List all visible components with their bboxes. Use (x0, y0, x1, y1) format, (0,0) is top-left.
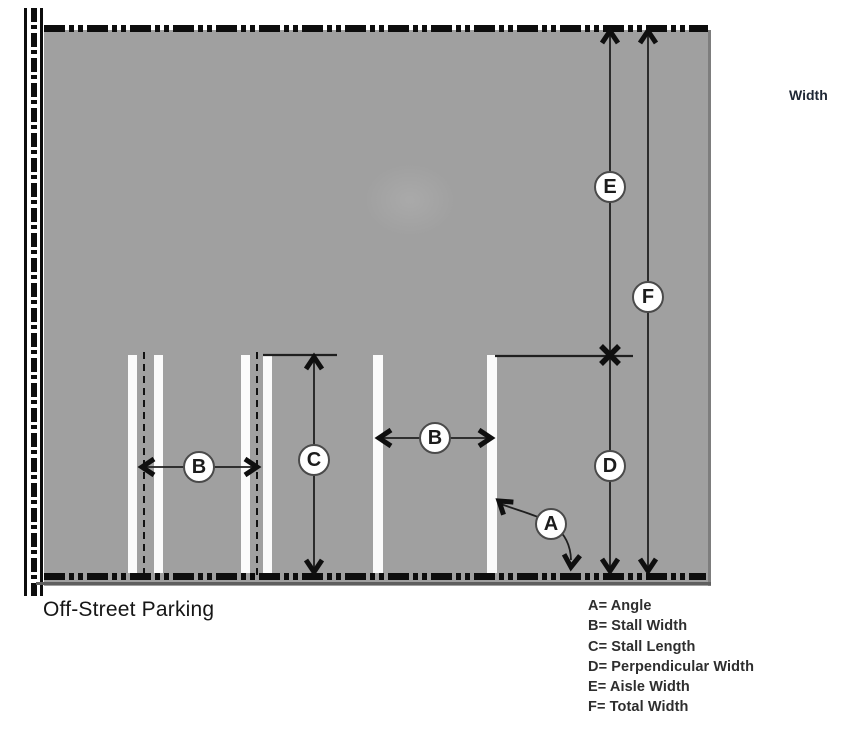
marker-letter: C (307, 449, 321, 472)
marker-badge-c: C (298, 444, 330, 476)
marker-badge-e: E (594, 171, 626, 203)
legend-item-aisle-width: E= Aisle Width (588, 677, 754, 697)
marker-badge-f: F (632, 281, 664, 313)
legend-item-stall-width: B= Stall Width (588, 616, 754, 636)
diagram-title: Off-Street Parking (43, 598, 214, 622)
legend-item-stall-length: C= Stall Length (588, 637, 754, 657)
marker-letter: A (544, 513, 558, 536)
marker-badge-a: A (535, 508, 567, 540)
marker-letter: B (428, 427, 442, 450)
marker-letter: F (642, 286, 654, 309)
legend-item-angle: A= Angle (588, 596, 754, 616)
marker-badge-b-right: B (419, 422, 451, 454)
legend-item-total-width: F= Total Width (588, 697, 754, 717)
parking-diagram: B B C D E F A Width Off-Street Parking A… (0, 0, 860, 745)
legend: A= Angle B= Stall Width C= Stall Length … (588, 596, 754, 718)
legend-item-perpendicular-width: D= Perpendicular Width (588, 657, 754, 677)
marker-letter: D (603, 455, 617, 478)
width-label: Width (789, 87, 828, 103)
marker-badge-b-left: B (183, 451, 215, 483)
marker-letter: E (603, 176, 616, 199)
marker-letter: B (192, 456, 206, 479)
marker-badge-d: D (594, 450, 626, 482)
